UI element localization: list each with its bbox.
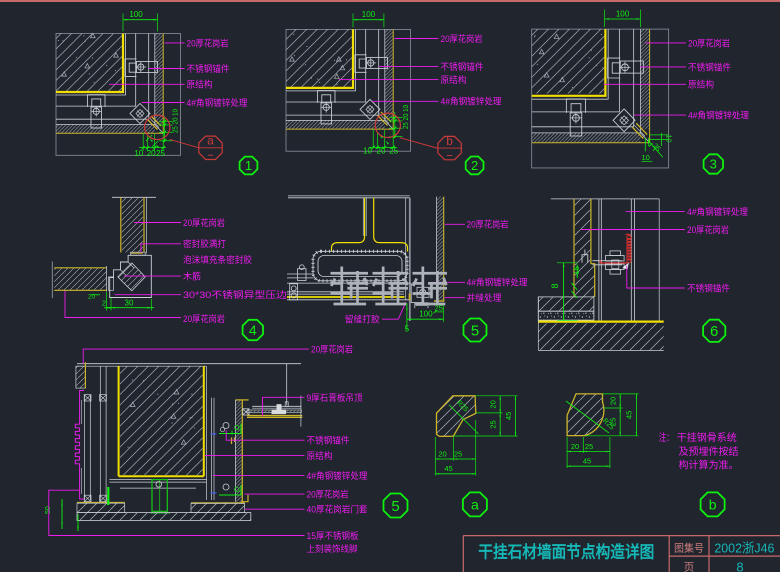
svg-text:20: 20 (377, 147, 386, 156)
svg-text:不锈钢锚件: 不锈钢锚件 (441, 61, 484, 72)
svg-text:10: 10 (642, 153, 650, 162)
svg-text:2002浙J46: 2002浙J46 (714, 540, 774, 555)
svg-text:泡沫填充条密封胶: 泡沫填充条密封胶 (183, 254, 252, 265)
svg-text:4#角钢镀锌处理: 4#角钢镀锌处理 (441, 96, 502, 107)
svg-text:20厚花岗岩: 20厚花岗岩 (183, 313, 225, 324)
svg-text:20厚花岗岩: 20厚花岗岩 (688, 37, 730, 48)
svg-text:原结构: 原结构 (187, 79, 213, 90)
svg-text:b: b (709, 496, 717, 512)
svg-text:5: 5 (471, 322, 479, 339)
svg-text:25: 25 (488, 420, 497, 428)
svg-text:干挂石材墙面节点构造详图: 干挂石材墙面节点构造详图 (478, 541, 654, 561)
svg-text:20厚花岗岩: 20厚花岗岩 (183, 217, 225, 228)
svg-text:20: 20 (571, 442, 579, 451)
svg-text:留缝打胶: 留缝打胶 (345, 314, 380, 325)
svg-text:25: 25 (608, 418, 617, 426)
svg-text:原结构: 原结构 (688, 79, 714, 90)
svg-text:20厚花岗岩: 20厚花岗岩 (687, 224, 729, 235)
svg-text:木筋: 木筋 (183, 271, 201, 282)
svg-text:4#角钢镀锌处理: 4#角钢镀锌处理 (187, 97, 248, 108)
svg-text:页: 页 (684, 561, 695, 572)
svg-text:不锈钢锚件: 不锈钢锚件 (307, 435, 350, 446)
svg-text:100: 100 (362, 10, 376, 19)
svg-text:25: 25 (389, 147, 398, 156)
svg-text:45: 45 (625, 411, 634, 419)
svg-text:4#角钢镀锌处理: 4#角钢镀锌处理 (687, 206, 748, 217)
svg-text:8: 8 (550, 283, 560, 288)
svg-text:5: 5 (405, 325, 410, 334)
svg-text:45: 45 (444, 464, 452, 473)
svg-text:上刻装饰线脚: 上刻装饰线脚 (307, 543, 358, 554)
svg-text:密封胶满打: 密封胶满打 (183, 238, 226, 249)
svg-text:100: 100 (419, 310, 433, 319)
svg-text:100: 100 (129, 10, 143, 19)
svg-text:6: 6 (710, 323, 718, 340)
svg-text:20厚花岗岩: 20厚花岗岩 (187, 37, 229, 48)
svg-text:4: 4 (249, 322, 257, 338)
svg-text:25: 25 (156, 149, 165, 158)
svg-text:干挂钢骨系统: 干挂钢骨系统 (677, 431, 737, 444)
svg-text:原结构: 原结构 (441, 74, 467, 85)
svg-text:并缝处理: 并缝处理 (467, 292, 502, 303)
svg-text:20: 20 (488, 400, 497, 408)
svg-text:a: a (207, 134, 214, 148)
svg-text:30: 30 (125, 298, 134, 307)
svg-text:20厚花岗岩: 20厚花岗岩 (307, 489, 349, 500)
svg-text:20: 20 (608, 397, 617, 405)
svg-text:及预埋件按结: 及预埋件按结 (679, 445, 739, 458)
svg-text:15: 15 (572, 266, 581, 274)
svg-text:a: a (471, 496, 479, 512)
svg-text:2: 2 (471, 158, 478, 173)
svg-text:45: 45 (583, 457, 591, 466)
svg-text:25: 25 (454, 449, 462, 458)
svg-text:构计算为准。: 构计算为准。 (679, 458, 739, 471)
svg-text:10: 10 (134, 149, 143, 158)
svg-text:8: 8 (736, 559, 743, 572)
svg-text:不锈钢锚件: 不锈钢锚件 (687, 282, 730, 293)
svg-text:3: 3 (710, 157, 717, 172)
svg-text:4#角钢镀锌处理: 4#角钢镀锌处理 (688, 110, 749, 121)
svg-text:9厚石膏板吊顶: 9厚石膏板吊顶 (307, 392, 363, 403)
svg-text:1: 1 (245, 158, 252, 173)
svg-text:2: 2 (102, 298, 106, 307)
svg-text:不锈钢锚件: 不锈钢锚件 (688, 61, 731, 72)
svg-text:20厚花岗岩: 20厚花岗岩 (467, 219, 509, 230)
svg-text:25 20 10: 25 20 10 (401, 105, 410, 129)
svg-text:4#角钢镀锌处理: 4#角钢镀锌处理 (307, 470, 368, 481)
svg-text:20厚花岗岩: 20厚花岗岩 (441, 33, 483, 44)
svg-text:20: 20 (147, 149, 156, 158)
svg-text:10: 10 (363, 147, 372, 156)
svg-text:45: 45 (504, 412, 513, 420)
svg-text:15厚不锈钢板: 15厚不锈钢板 (307, 530, 359, 541)
svg-text:注：: 注： (659, 431, 674, 444)
svg-text:5: 5 (391, 498, 399, 515)
svg-text:20厚花岗岩: 20厚花岗岩 (311, 344, 353, 355)
svg-text:b: b (446, 134, 453, 148)
svg-text:10: 10 (665, 135, 674, 143)
svg-text:4#角钢镀锌处理: 4#角钢镀锌处理 (467, 277, 528, 288)
svg-text:100: 100 (616, 9, 630, 18)
svg-text:不锈钢锚件: 不锈钢锚件 (187, 63, 230, 74)
svg-text:图集号: 图集号 (674, 541, 704, 554)
svg-text:20: 20 (438, 449, 446, 458)
svg-text:25: 25 (585, 442, 593, 451)
svg-text:20: 20 (88, 293, 96, 300)
svg-text:25 20 10: 25 20 10 (171, 109, 180, 133)
svg-text:原结构: 原结构 (307, 450, 333, 461)
svg-text:40厚花岗岩门套: 40厚花岗岩门套 (307, 504, 368, 515)
svg-text:30*30不锈钢异型压边: 30*30不锈钢异型压边 (183, 289, 287, 300)
